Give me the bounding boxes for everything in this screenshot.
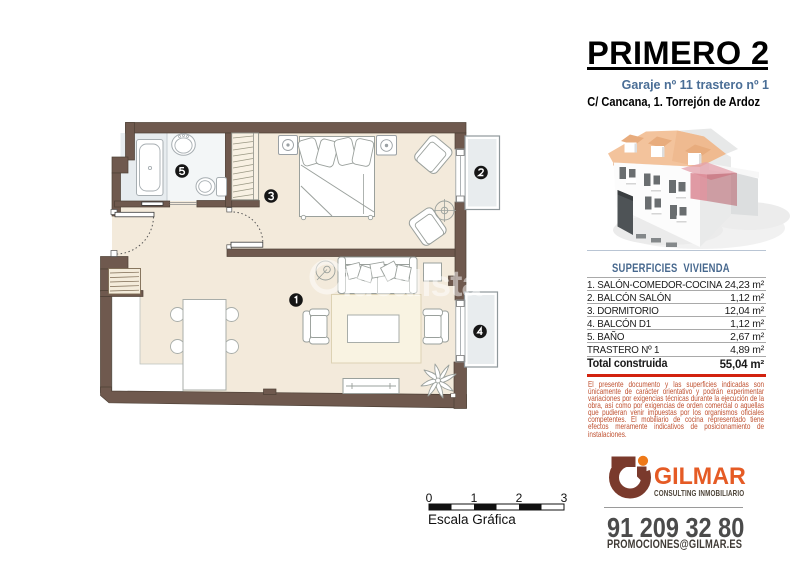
svg-text:0: 0 — [426, 491, 433, 505]
svg-text:3: 3 — [561, 491, 568, 505]
svg-text:1: 1 — [471, 491, 478, 505]
svg-text:Escala Gráfica: Escala Gráfica — [428, 512, 516, 527]
svg-text:2: 2 — [516, 491, 523, 505]
svg-text:idealista: idealista — [342, 263, 482, 304]
